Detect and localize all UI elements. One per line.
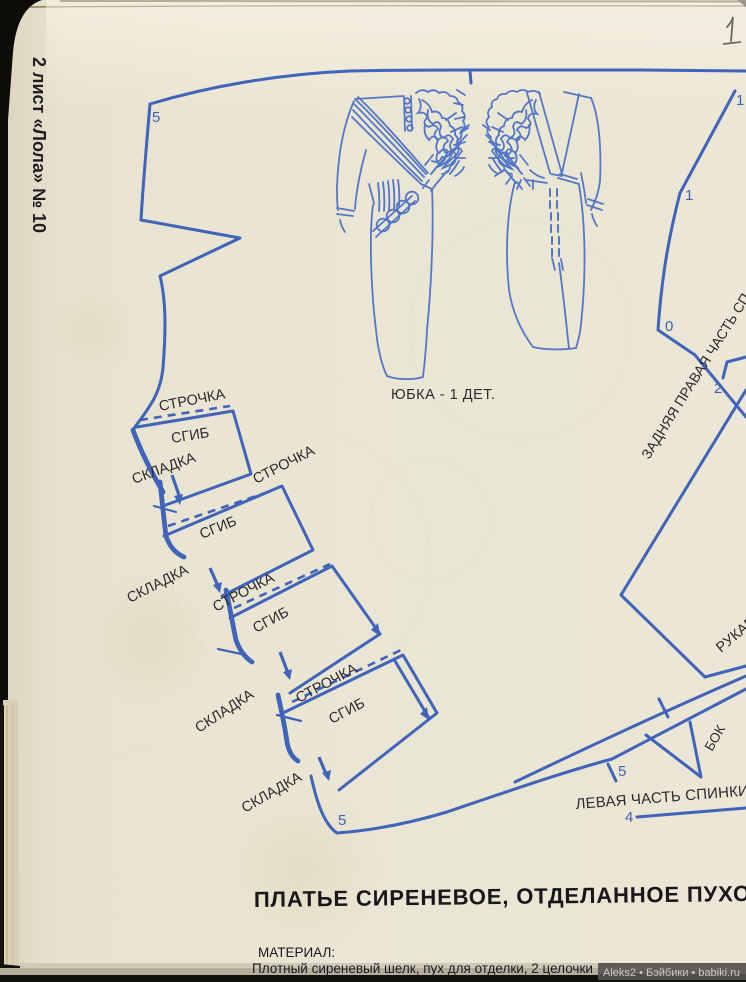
svg-text:ятилаолл тедзь кш: ятилаолл тедзь кш xyxy=(85,866,208,881)
svg-text:2: 2 xyxy=(714,380,722,397)
svg-text:0: 0 xyxy=(665,318,673,335)
svg-text:5: 5 xyxy=(338,812,346,829)
svg-text:1: 1 xyxy=(736,92,744,109)
svg-text:атокья дл: атокья дл xyxy=(110,906,174,921)
svg-text:4: 4 xyxy=(625,809,633,826)
svg-text:впд алтпохи: впд алтпохи xyxy=(300,856,380,871)
svg-text:1: 1 xyxy=(685,187,693,204)
svg-text:Aleks2 • Бэйбики • babiki.ru: Aleks2 • Бэйбики • babiki.ru xyxy=(603,967,740,979)
svg-text:ЮБКА - 1 ДЕТ.: ЮБКА - 1 ДЕТ. xyxy=(391,387,496,403)
svg-text:5: 5 xyxy=(618,763,626,780)
svg-text:Плотный сиреневый шелк, пух дл: Плотный сиреневый шелк, пух для отделки,… xyxy=(252,961,593,976)
svg-text:МАТЕРИАЛ:: МАТЕРИАЛ: xyxy=(258,945,335,960)
svg-text:2 лист «Лола» № 10: 2 лист «Лола» № 10 xyxy=(29,57,49,233)
svg-text:5: 5 xyxy=(152,109,160,126)
svg-text:длиотмена ыкл те: длиотмена ыкл те xyxy=(95,886,212,901)
